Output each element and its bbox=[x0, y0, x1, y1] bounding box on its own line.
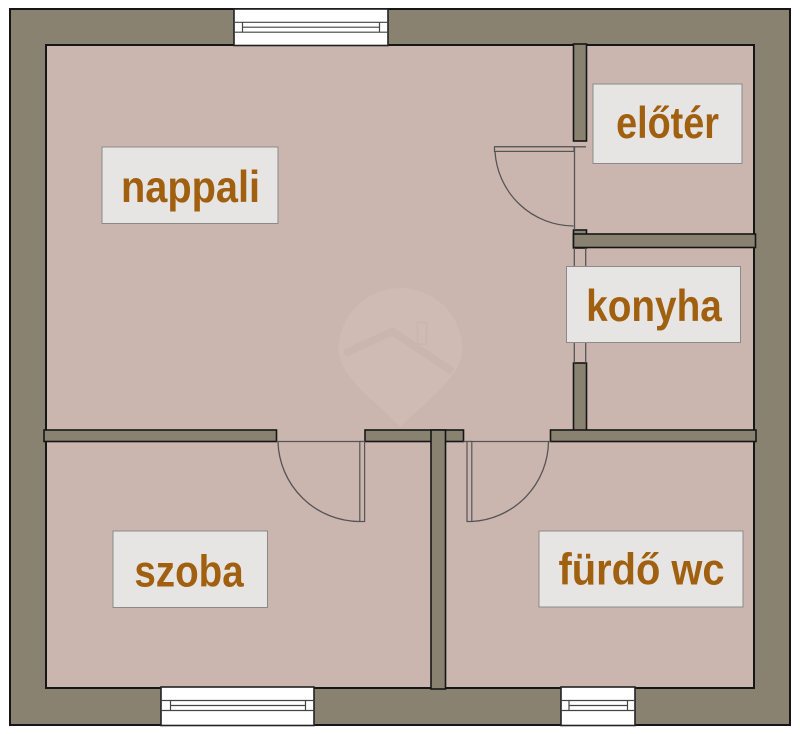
svg-text:szoba: szoba bbox=[134, 546, 244, 596]
svg-text:nappali: nappali bbox=[121, 162, 260, 212]
svg-text:konyha: konyha bbox=[586, 280, 722, 330]
svg-text:fürdő wc: fürdő wc bbox=[558, 544, 724, 594]
svg-text:előtér: előtér bbox=[616, 98, 719, 148]
